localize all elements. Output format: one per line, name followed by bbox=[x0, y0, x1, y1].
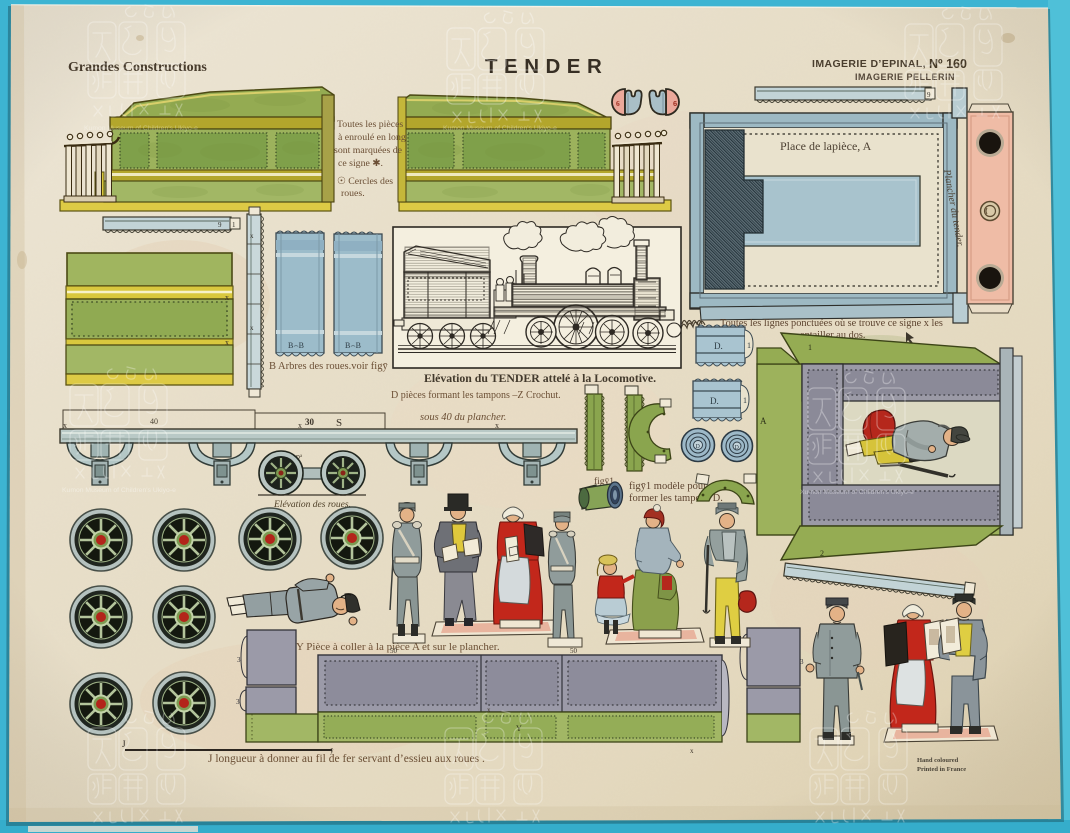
svg-text:Elévation des roues.: Elévation des roues. bbox=[273, 500, 351, 510]
svg-text:ce signe ✱.: ce signe ✱. bbox=[338, 158, 383, 169]
svg-text:1: 1 bbox=[743, 396, 747, 405]
svg-text:50: 50 bbox=[570, 647, 578, 655]
svg-text:x: x bbox=[690, 747, 694, 755]
svg-text:x: x bbox=[225, 293, 229, 302]
svg-text:6: 6 bbox=[616, 99, 620, 108]
svg-text:J longueur à donner au fil de: J longueur à donner au fil de fer servan… bbox=[208, 753, 485, 765]
svg-text:3: 3 bbox=[800, 658, 804, 666]
svg-text:Toutes les pièces: Toutes les pièces bbox=[337, 119, 403, 130]
svg-text:B⌢B: B⌢B bbox=[345, 341, 361, 350]
svg-text:Hand coloured: Hand coloured bbox=[917, 757, 959, 764]
svg-text:S: S bbox=[336, 417, 342, 429]
svg-text:Kumon Museum of Children's Uki: Kumon Museum of Children's Ukiyo-e bbox=[62, 487, 176, 494]
svg-text:x: x bbox=[63, 421, 67, 430]
svg-text:9: 9 bbox=[927, 91, 931, 99]
svg-text:sont marquées de: sont marquées de bbox=[334, 145, 403, 156]
svg-text:Printed in France: Printed in France bbox=[917, 766, 966, 773]
svg-text:D.: D. bbox=[714, 341, 723, 351]
svg-text:1: 1 bbox=[808, 343, 812, 352]
svg-text:x: x bbox=[487, 706, 491, 714]
svg-text:D: D bbox=[696, 444, 701, 450]
svg-text:40: 40 bbox=[150, 417, 158, 426]
svg-text:x: x bbox=[250, 232, 254, 240]
svg-text:30: 30 bbox=[305, 417, 315, 427]
svg-text:3: 3 bbox=[237, 656, 241, 664]
svg-text:x: x bbox=[250, 324, 254, 332]
svg-text:ȳ: ȳ bbox=[330, 747, 334, 755]
svg-text:sous 40 du plancher.: sous 40 du plancher. bbox=[420, 412, 506, 423]
svg-text:D: D bbox=[735, 445, 740, 451]
svg-text:Kumon Museum of Children's Uki: Kumon Museum of Children's Ukiyo-e bbox=[84, 125, 198, 132]
svg-text:2: 2 bbox=[820, 549, 824, 558]
svg-text:1: 1 bbox=[232, 221, 236, 229]
svg-text:Toutes les lignes ponctuées où: Toutes les lignes ponctuées où se trouve… bbox=[720, 318, 943, 329]
svg-text:Nº 160: Nº 160 bbox=[929, 57, 967, 71]
svg-text:☉ Cercles des: ☉ Cercles des bbox=[337, 176, 393, 187]
svg-text:D pièces formant les tampons –: D pièces formant les tampons –Z Crochut. bbox=[391, 390, 561, 401]
svg-text:x: x bbox=[225, 338, 229, 347]
svg-text:à enroulé en long: à enroulé en long bbox=[338, 132, 406, 143]
svg-text:B⌢B: B⌢B bbox=[288, 341, 304, 350]
svg-text:IMAGERIE D’EPINAL,: IMAGERIE D’EPINAL, bbox=[812, 58, 926, 70]
svg-text:x: x bbox=[495, 421, 499, 430]
svg-text:Place de lapièce, A: Place de lapièce, A bbox=[780, 139, 872, 153]
svg-text:Xumon Museum of Children's Uki: Xumon Museum of Children's Ukiyo-e bbox=[800, 489, 914, 496]
svg-text:B Arbres des roues.voir figȳ: B Arbres des roues.voir figȳ bbox=[269, 361, 388, 372]
svg-text:x: x bbox=[298, 421, 302, 430]
svg-text:1: 1 bbox=[747, 341, 751, 350]
svg-text:50: 50 bbox=[390, 647, 398, 655]
svg-text:A: A bbox=[760, 416, 767, 426]
svg-text:3: 3 bbox=[236, 698, 240, 706]
svg-text:Elévation du TENDER attelé à l: Elévation du TENDER attelé à la Locomoti… bbox=[424, 371, 656, 385]
svg-text:roues.: roues. bbox=[341, 188, 365, 199]
svg-text:D.: D. bbox=[710, 396, 719, 406]
svg-text:Kumon Museum of Children's Uki: Kumon Museum of Children's Ukiyo-e bbox=[443, 125, 557, 132]
svg-text:9: 9 bbox=[218, 221, 222, 229]
svg-text:6: 6 bbox=[673, 99, 677, 108]
